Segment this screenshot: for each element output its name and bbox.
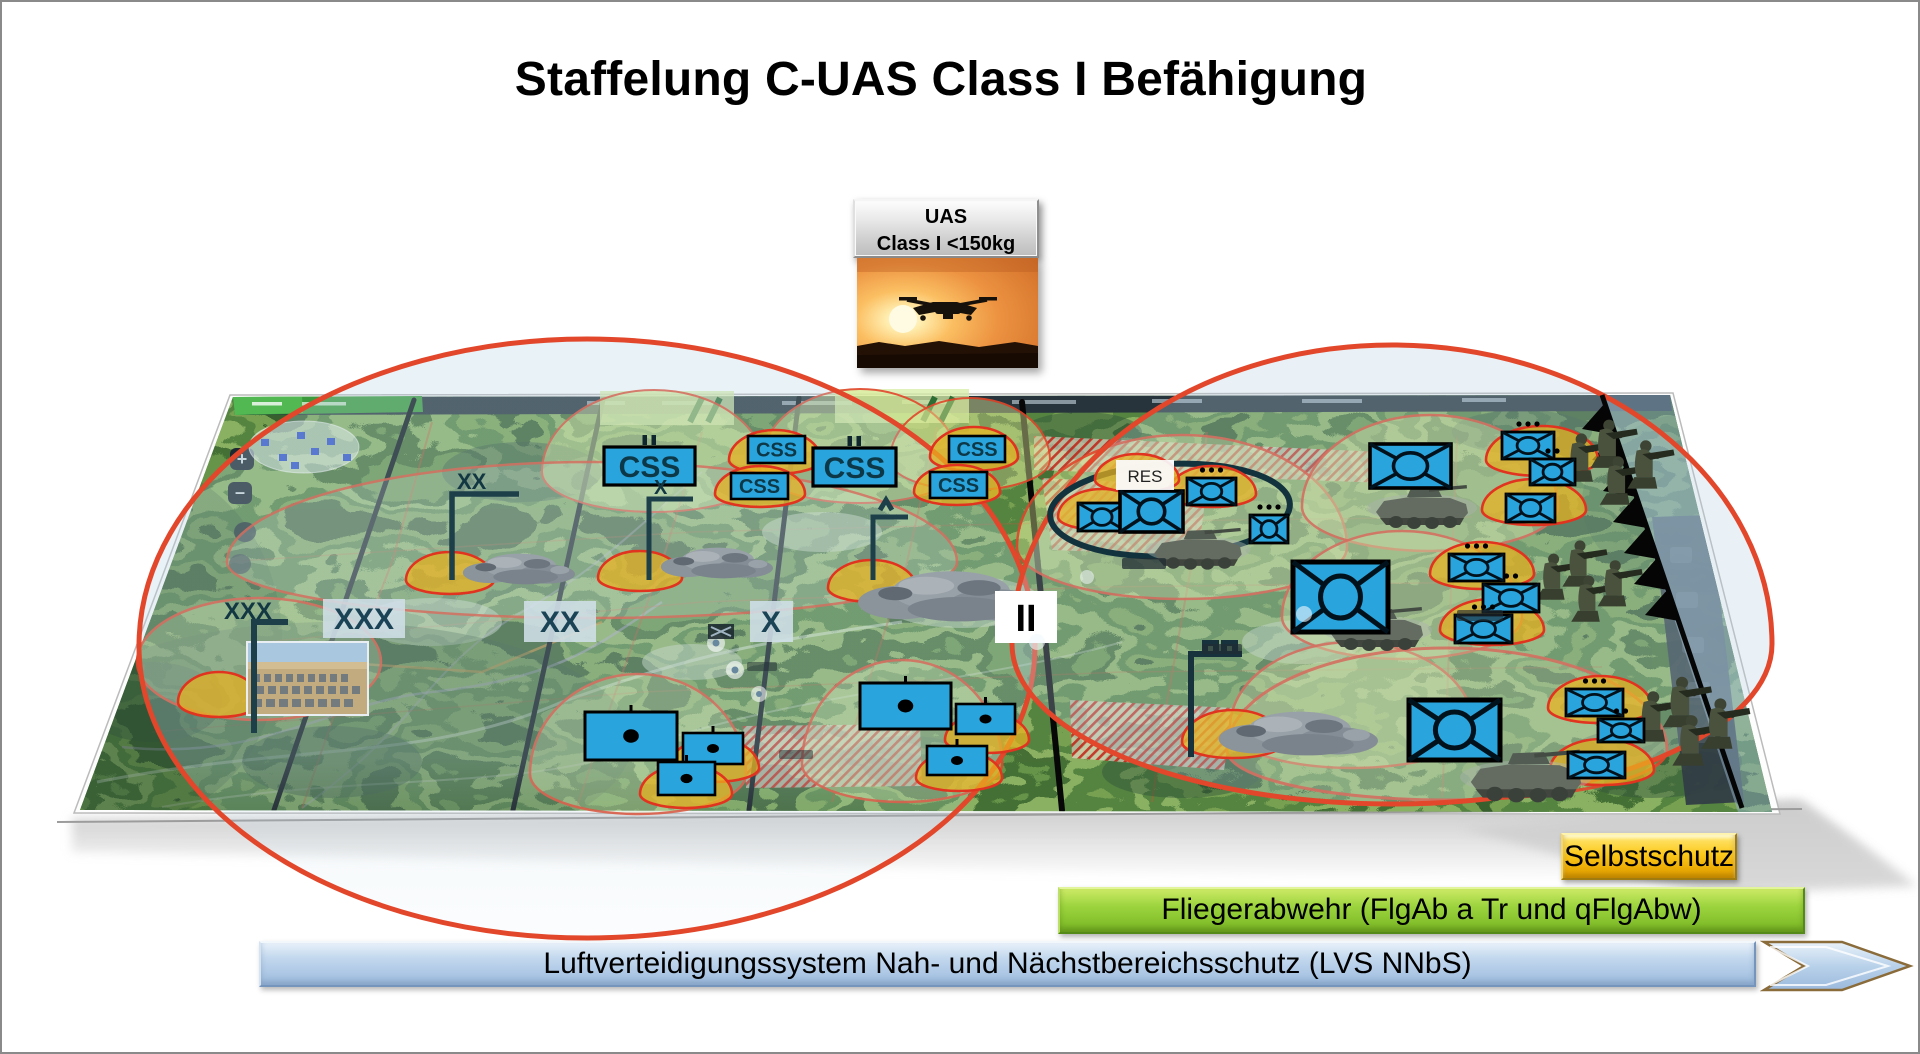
svg-text:XX: XX	[540, 606, 580, 639]
svg-text:X: X	[654, 477, 668, 499]
svg-text:CSS: CSS	[824, 452, 886, 485]
svg-text:RES: RES	[1128, 467, 1163, 486]
svg-text:CSS: CSS	[756, 440, 797, 462]
svg-text:CSS: CSS	[739, 476, 780, 498]
svg-text:II: II	[1015, 598, 1036, 640]
svg-text:CSS: CSS	[938, 475, 979, 497]
svg-text:CSS: CSS	[619, 451, 681, 484]
svg-text:CSS: CSS	[956, 439, 997, 461]
svg-text:X: X	[761, 606, 781, 639]
svg-text:XXX: XXX	[334, 603, 394, 636]
svg-text:XX: XX	[457, 469, 487, 494]
svg-text:XXX: XXX	[224, 598, 272, 625]
